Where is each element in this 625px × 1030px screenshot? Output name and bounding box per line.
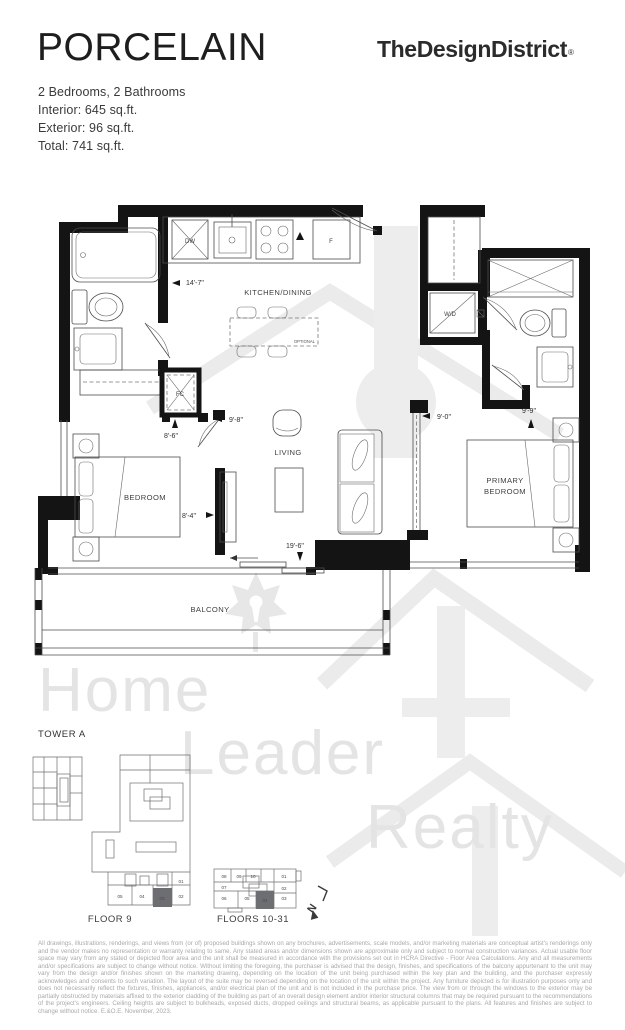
f1031-unit-10: 10 [250, 874, 256, 879]
dishwasher-label: DW [185, 239, 195, 245]
bedroom-label: BEDROOM [124, 493, 166, 502]
floor9-unit-01: 01 [178, 879, 184, 884]
toilet-2 [520, 309, 566, 337]
sink-2 [537, 347, 573, 387]
legal-disclaimer: All drawings, illustrations, renderings,… [38, 940, 592, 1015]
f1031-unit-09: 09 [236, 874, 242, 879]
north-arrow-icon: N [302, 886, 327, 923]
floors-10-31-label: FLOORS 10-31 [217, 914, 289, 925]
kitchen-dim-arrow [296, 232, 304, 240]
armchair [273, 410, 301, 436]
dim-kitchen: 14'-7" [186, 280, 204, 287]
entry-closet [428, 217, 480, 283]
fridge-label: F [329, 239, 333, 245]
sofa [338, 430, 382, 534]
f1031-unit-05: 05 [244, 896, 250, 901]
windows [35, 420, 579, 655]
bathroom-2 [488, 260, 573, 387]
primary-bedroom-label-2: BEDROOM [484, 487, 526, 496]
dim-dining: 9'-8" [229, 417, 243, 424]
shower [488, 260, 573, 297]
primary-bedroom-label-1: PRIMARY [486, 476, 523, 485]
living-label: LIVING [274, 448, 301, 457]
washer-dryer [430, 293, 484, 333]
washer-dryer-label: W/D [444, 312, 456, 318]
unit-floorplan: DW F OPTIONAL [35, 205, 590, 655]
floor9-unit-02: 02 [178, 894, 184, 899]
floor9-label: FLOOR 9 [88, 914, 132, 925]
dining-table [230, 307, 318, 357]
f1031-unit-03: 03 [281, 896, 287, 901]
f1031-unit-06: 06 [221, 896, 227, 901]
keyplan-floor9: 01 02 03 04 05 FLOOR 9 [33, 755, 190, 925]
fan-coil-label: FC [176, 392, 185, 398]
walls [35, 205, 590, 655]
dim-living: 9'-0" [437, 414, 451, 421]
living-furniture [220, 410, 382, 542]
kitchen-dining-label: KITCHEN/DINING [244, 288, 312, 297]
floorplan-brochure-page: Home Leader Realty PORCELAIN TheDesignDi… [0, 0, 625, 1030]
bathroom-1 [72, 228, 160, 370]
primary-bedroom-furniture [467, 418, 579, 552]
optional-label: OPTIONAL [294, 339, 316, 344]
coffee-table [275, 468, 303, 512]
f1031-unit-08: 08 [221, 874, 227, 879]
f1031-unit-07: 07 [221, 885, 227, 890]
balcony-label: BALCONY [190, 605, 229, 614]
tower-label: TOWER A [38, 729, 86, 740]
f1031-unit-04: 04 [262, 898, 268, 903]
sink-1 [74, 328, 122, 370]
floorplan-drawing: DW F OPTIONAL [0, 0, 625, 1030]
floor9-unit-03: 03 [159, 896, 165, 901]
toilet-1 [72, 290, 123, 324]
sliding-partition [413, 413, 420, 530]
dim-primary: 9'-9" [522, 408, 536, 415]
f1031-unit-02: 02 [281, 886, 287, 891]
dim-bedroom-d: 8'-4" [182, 513, 196, 520]
dim-bedroom-w: 8'-6" [164, 433, 178, 440]
kitchen-sink [214, 214, 251, 258]
keyplan-floors-10-31: 08 09 10 01 07 02 06 05 04 03 FLOORS 10-… [214, 869, 301, 925]
floor9-unit-04: 04 [139, 894, 145, 899]
stove [256, 220, 293, 259]
floor9-unit-05: 05 [117, 894, 123, 899]
dim-balcony: 19'-6" [286, 543, 304, 550]
f1031-unit-01: 01 [281, 874, 287, 879]
doors [145, 208, 524, 447]
